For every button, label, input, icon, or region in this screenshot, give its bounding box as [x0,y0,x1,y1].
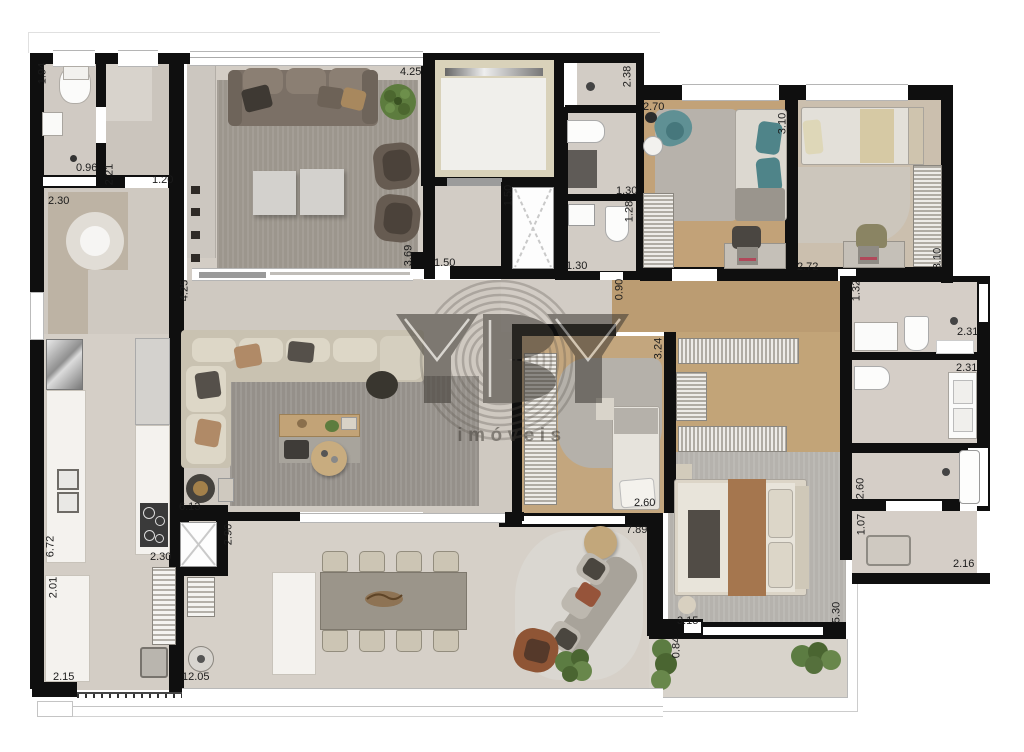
svg-text:imóveis: imóveis [457,425,566,446]
